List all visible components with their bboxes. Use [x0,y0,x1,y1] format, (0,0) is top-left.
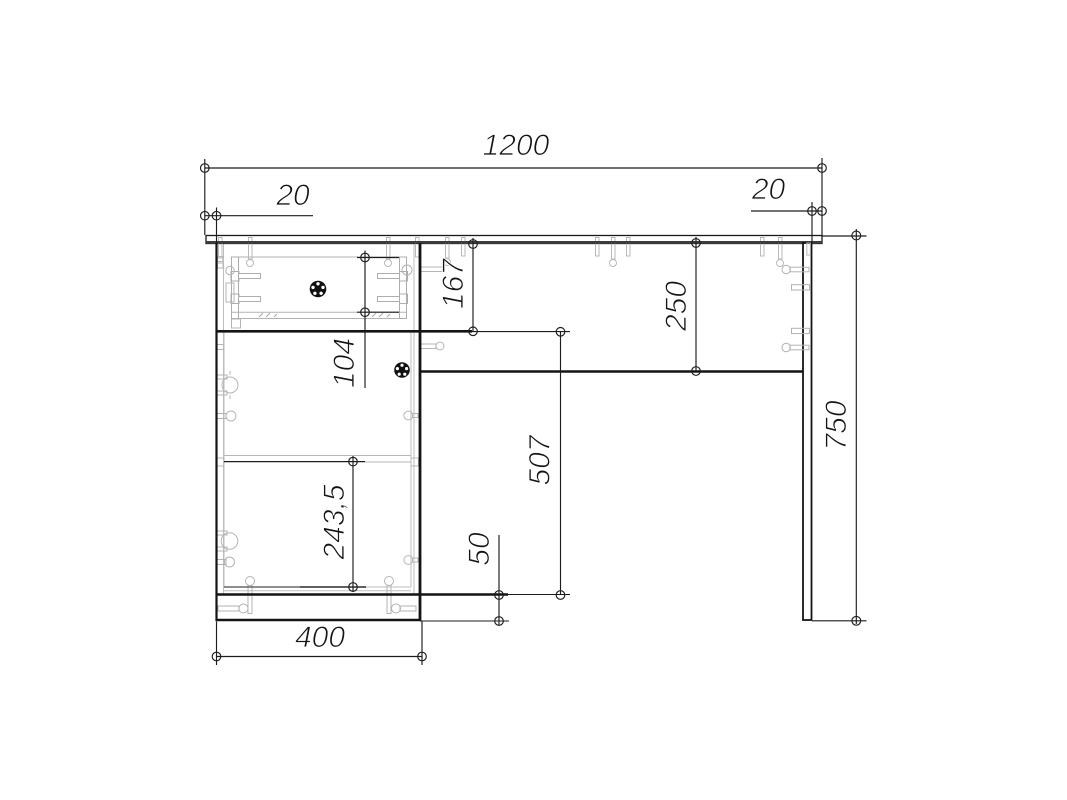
svg-text:50: 50 [463,532,496,566]
svg-text:104: 104 [328,338,361,388]
svg-text:750: 750 [820,400,853,450]
svg-text:243,5: 243,5 [318,484,351,560]
svg-text:20: 20 [751,173,786,206]
svg-text:507: 507 [524,434,557,485]
svg-text:250: 250 [660,281,693,332]
svg-text:400: 400 [295,621,345,654]
svg-text:1200: 1200 [483,129,550,162]
svg-text:20: 20 [275,179,310,212]
svg-text:167: 167 [437,258,470,309]
